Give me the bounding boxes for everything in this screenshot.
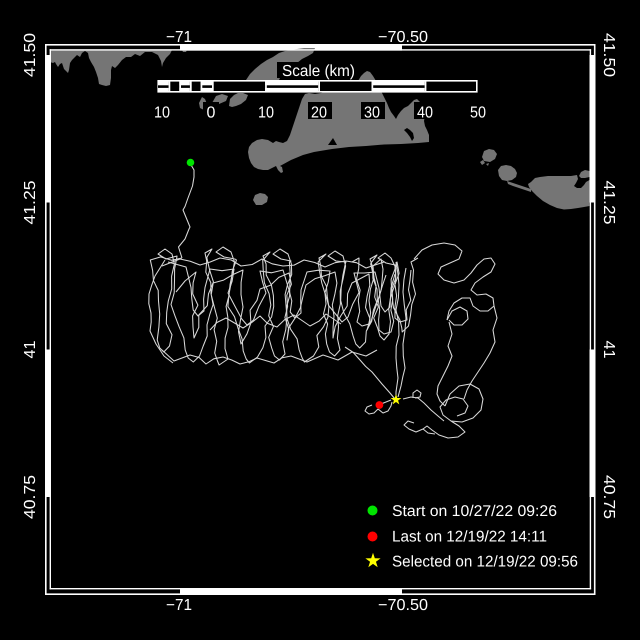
svg-text:41: 41 bbox=[600, 341, 617, 359]
svg-text:41.25: 41.25 bbox=[600, 181, 617, 225]
svg-text:Selected on 12/19/22 09:56: Selected on 12/19/22 09:56 bbox=[392, 554, 578, 571]
svg-text:−71: −71 bbox=[166, 29, 192, 46]
svg-text:−71: −71 bbox=[166, 597, 192, 614]
svg-text:20: 20 bbox=[311, 105, 327, 122]
svg-text:Start on 10/27/22 09:26: Start on 10/27/22 09:26 bbox=[392, 503, 557, 520]
svg-text:41.50: 41.50 bbox=[600, 33, 617, 77]
svg-text:−70.50: −70.50 bbox=[378, 29, 428, 46]
svg-text:40: 40 bbox=[417, 105, 433, 122]
svg-text:10: 10 bbox=[258, 105, 274, 122]
svg-text:40.75: 40.75 bbox=[600, 475, 617, 519]
svg-text:30: 30 bbox=[364, 105, 380, 122]
svg-text:Last on 12/19/22 14:11: Last on 12/19/22 14:11 bbox=[392, 529, 547, 546]
svg-text:0: 0 bbox=[207, 105, 216, 122]
svg-text:41.25: 41.25 bbox=[22, 180, 39, 224]
svg-text:40.75: 40.75 bbox=[22, 475, 39, 519]
svg-text:Scale (km): Scale (km) bbox=[282, 63, 355, 80]
svg-text:41: 41 bbox=[22, 340, 39, 358]
svg-text:10: 10 bbox=[154, 105, 170, 122]
svg-text:−70.50: −70.50 bbox=[378, 597, 428, 614]
svg-text:41.50: 41.50 bbox=[22, 33, 39, 77]
svg-text:50: 50 bbox=[470, 105, 486, 122]
